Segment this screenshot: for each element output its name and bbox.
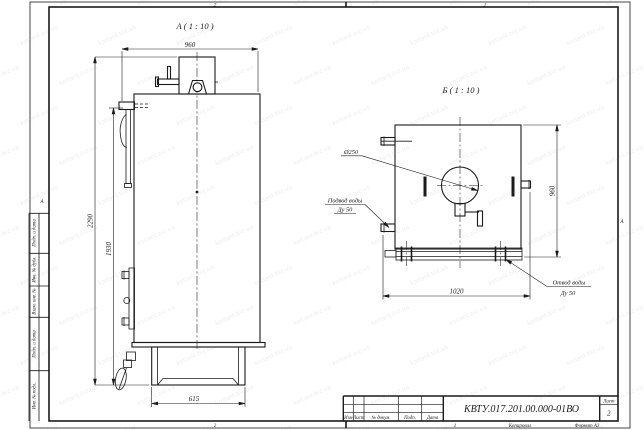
margin-cell-podp-data-1: Подп. и дата (32, 219, 37, 248)
margin-cell-inv-dubl: Инв. № дубл. (31, 256, 37, 283)
stamp-col-izm: Изм (343, 416, 352, 421)
stamp-col-data: Дата (426, 416, 439, 421)
view-a-center-dot (196, 191, 199, 194)
view-a: А ( 1 : 10 ) (87, 21, 265, 407)
view-b-leader-inlet: Подвод воды Ду 50 (325, 198, 389, 228)
inlet-label-line2: Ду 50 (337, 207, 354, 214)
view-b-slot-left (424, 177, 427, 197)
view-b-leader-diameter: Ø250 (341, 149, 478, 191)
stamp-col-list: Лист (352, 416, 365, 421)
kopiroval-label: Копировал (508, 424, 531, 429)
margin-cell-labels: Подп. и дата Инв. № дубл. Взам. инв. № П… (31, 219, 37, 411)
dim-960b-label: 960 (549, 185, 557, 196)
view-b-title: Б ( 1 : 10 ) (442, 85, 480, 95)
inlet-label-line1: Подвод воды (327, 198, 363, 205)
view-b-leader-outlet: Отвод воды Ду 50 (506, 260, 591, 298)
view-a-dim-base: 615 (152, 387, 245, 407)
view-a-title: А ( 1 : 10 ) (175, 21, 213, 31)
view-b: Б ( 1 : 10 ) (325, 85, 591, 300)
fold-mark-left: А (39, 200, 44, 205)
dim-1930-label: 1930 (105, 242, 113, 257)
view-a-body-outline (119, 57, 265, 385)
stamp-col-dokum: № докум. (370, 415, 390, 421)
doc-number: КВТУ.017.201.00.000-01ВО (463, 404, 579, 415)
dim-615-label: 615 (189, 395, 200, 403)
drawing-sheet: 2 1 2 1 Копировал Формат А3 А А Подп. и … (0, 0, 644, 430)
fold-mark-right: А (619, 220, 624, 225)
stamp-col-podp: Подп. (403, 416, 416, 421)
format-label: Формат А3 (575, 424, 600, 429)
sheet-frame (30, 2, 630, 428)
view-a-dim-width: 960 (122, 41, 258, 101)
zone-bottom-right: 1 (454, 424, 457, 429)
margin-cell-podp-data-2: Подп. и дата (32, 330, 37, 359)
diameter-label: Ø250 (343, 149, 359, 156)
outlet-label-line1: Отвод воды (553, 280, 586, 287)
outlet-label-line2: Ду 50 (560, 290, 577, 297)
zone-top-right: 1 (484, 3, 487, 8)
view-b-slot-right (512, 177, 515, 197)
view-b-dim-width: 1020 (383, 192, 530, 300)
margin-cell-vzam-inv: Взам. инв. № (31, 288, 37, 315)
sheet-number: 2 (607, 410, 611, 418)
title-block-text: Изм Лист № докум. Подп. Дата КВТУ.017.20… (343, 399, 615, 421)
view-b-dim-height: 960 (523, 125, 561, 257)
dim-1020-label: 1020 (450, 287, 465, 295)
view-b-outline (381, 125, 531, 249)
drawing-canvas: 2 1 2 1 Копировал Формат А3 А А Подп. и … (0, 0, 644, 430)
sheet-label: Лист (602, 399, 615, 404)
dim-960-label: 960 (185, 41, 196, 49)
frame-zone-labels: 2 1 2 1 Копировал Формат А3 А А (39, 3, 624, 429)
view-a-dim-total-height: 2290 (87, 57, 177, 385)
margin-cell-inv-podl: Инв. № подл. (31, 383, 37, 411)
view-b-details (381, 137, 529, 261)
view-a-dim-door-height: 1930 (105, 108, 123, 385)
view-b-centerlines (407, 117, 501, 268)
dim-2290-label: 2290 (87, 214, 95, 229)
